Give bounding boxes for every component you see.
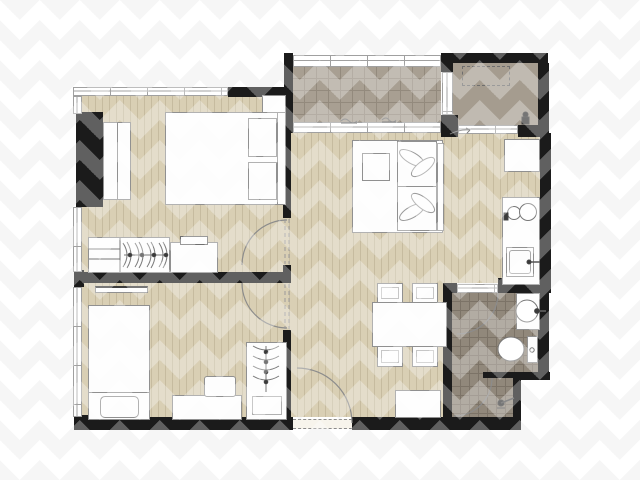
bedroom-1-door-arc (242, 220, 287, 265)
leaf-pillow-decor-icon (397, 146, 437, 224)
shower-door-arc (454, 378, 492, 416)
ac-door-arrow-icon (450, 128, 470, 134)
plan-line-overlay (0, 0, 640, 480)
bedroom-2-door-arc (242, 283, 287, 328)
balcony-slippers-icon (341, 118, 396, 123)
sink-faucet-icon (527, 260, 540, 264)
ac-valve-icon (522, 112, 529, 124)
entrance-door-arc (297, 368, 352, 423)
bathroom-door-arc (457, 293, 498, 334)
toilet-icon (498, 337, 534, 361)
floor-plan-canvas (0, 0, 640, 480)
shower-head-icon (497, 398, 514, 408)
stove-burners-icon (504, 204, 537, 221)
wash-basin-icon (516, 300, 546, 322)
